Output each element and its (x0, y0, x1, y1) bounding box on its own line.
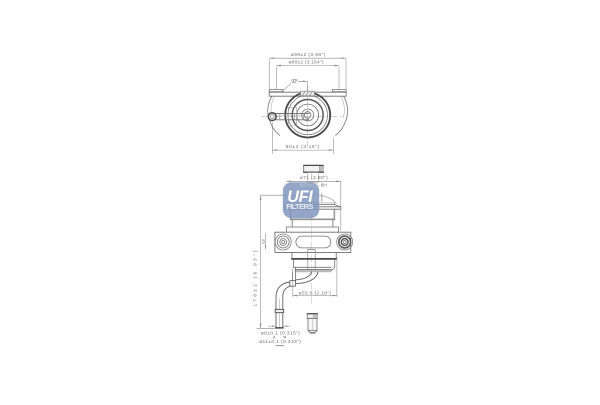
svg-text:ø71 (2.80"): ø71 (2.80") (300, 175, 328, 181)
svg-text:ø80±2 (3.154"): ø80±2 (3.154") (289, 60, 324, 66)
svg-text:FILTERS: FILTERS (286, 202, 313, 211)
svg-text:ø8±0.1 (0.315"): ø8±0.1 (0.315") (261, 331, 300, 337)
svg-text:90°: 90° (291, 79, 298, 85)
svg-text:80±2 (3.15"): 80±2 (3.15") (286, 144, 320, 150)
svg-text:0,8: 0,8 (261, 239, 265, 244)
svg-text:ø98±2 (3.86"): ø98±2 (3.86") (291, 52, 326, 58)
svg-text:ø55.5 (2.18"): ø55.5 (2.18") (299, 290, 332, 296)
svg-text:ø11±0.1 (0.433"): ø11±0.1 (0.433") (259, 339, 301, 345)
